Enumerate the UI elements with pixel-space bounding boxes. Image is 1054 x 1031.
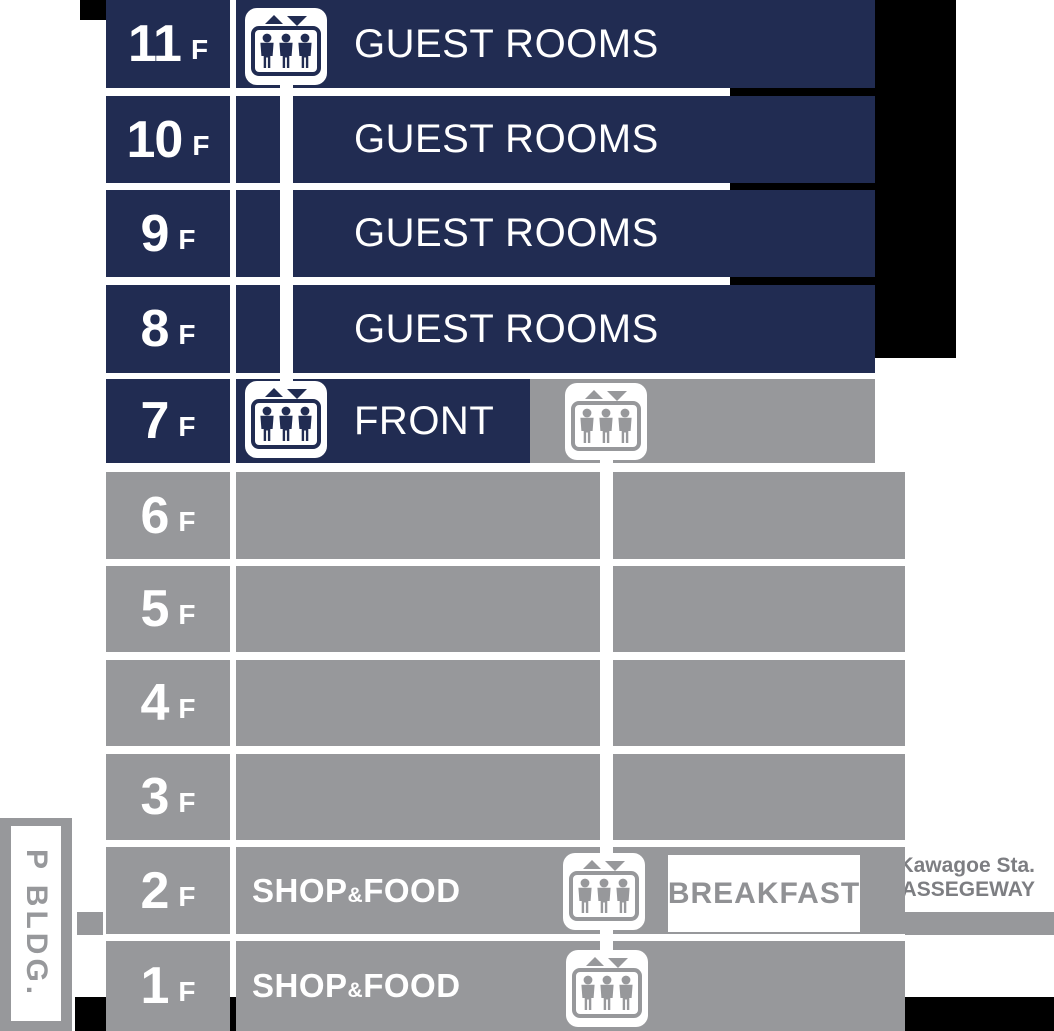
- floor-number: 1: [140, 960, 168, 1012]
- floor-suffix: F: [178, 978, 195, 1006]
- floor-row-2f: 2 F SHOP&FOOD: [0, 847, 1054, 934]
- elevator-shaft-lower: [600, 455, 613, 857]
- elevator-icon: [563, 853, 645, 930]
- floor-content: [236, 472, 905, 559]
- floor-label: GUEST ROOMS: [236, 307, 659, 352]
- floor-suffix: F: [178, 601, 195, 629]
- floor-row-5f: 5 F: [0, 566, 1054, 652]
- floor-content: GUEST ROOMS: [236, 285, 875, 373]
- floor-number-cell: 7 F: [106, 379, 230, 463]
- floor-number: 2: [140, 865, 168, 917]
- floor-content: [236, 660, 905, 746]
- floor-number: 8: [140, 303, 168, 355]
- breakfast-label: BREAKFAST: [668, 877, 860, 911]
- floor-number: 5: [140, 583, 168, 635]
- floor-number-cell: 10 F: [106, 96, 230, 183]
- p-bldg-sign: P BLDG.: [7, 822, 65, 1025]
- floor-number: 11: [128, 18, 181, 70]
- floor-number-cell: 1 F: [106, 941, 230, 1031]
- floor-content: GUEST ROOMS: [236, 190, 875, 277]
- floor-row-7f: 7 F FRONT: [0, 379, 1054, 463]
- floor-label: GUEST ROOMS: [236, 211, 659, 256]
- floor-number-cell: 4 F: [106, 660, 230, 746]
- floor-suffix: F: [178, 321, 195, 349]
- elevator-shaft-upper: [280, 82, 293, 386]
- p-bldg-label: P BLDG.: [19, 849, 53, 998]
- floor-suffix: F: [192, 132, 209, 160]
- floor-number: 9: [140, 208, 168, 260]
- floor-suffix: F: [178, 789, 195, 817]
- floor-number: 6: [140, 490, 168, 542]
- floor-label: SHOP&FOOD: [236, 967, 461, 1005]
- elevator-icon: [245, 8, 327, 85]
- floor-number: 3: [140, 771, 168, 823]
- floor-guide-diagram: P BLDG. Kawagoe Sta. PASSEGEWAY 11 F GUE…: [0, 0, 1054, 1031]
- floor-suffix: F: [191, 36, 208, 64]
- elevator-icon: [245, 381, 327, 458]
- floor-number-cell: 9 F: [106, 190, 230, 277]
- floor-number: 7: [140, 395, 168, 447]
- floor-row-9f: 9 F GUEST ROOMS: [0, 190, 1054, 277]
- floor-row-3f: 3 F: [0, 754, 1054, 840]
- floor-row-11f: 11 F GUEST ROOMS: [0, 0, 1054, 88]
- floor-suffix: F: [178, 413, 195, 441]
- breakfast-box: BREAKFAST: [668, 855, 860, 932]
- floor-row-10f: 10 F GUEST ROOMS: [0, 96, 1054, 183]
- floor-number-cell: 2 F: [106, 847, 230, 934]
- floor-label: SHOP&FOOD: [236, 872, 461, 910]
- elevator-icon: [566, 950, 648, 1027]
- floor-content: [236, 566, 905, 652]
- floor-suffix: F: [178, 226, 195, 254]
- floor-number-cell: 6 F: [106, 472, 230, 559]
- floor-content: [236, 754, 905, 840]
- floor-content: GUEST ROOMS: [236, 96, 875, 183]
- floor-number-cell: 8 F: [106, 285, 230, 373]
- floor-row-6f: 6 F: [0, 472, 1054, 559]
- floor-number: 10: [127, 114, 183, 166]
- floor-number: 4: [140, 677, 168, 729]
- floor-row-1f: 1 F SHOP&FOOD: [0, 941, 1054, 1031]
- floor-number-cell: 5 F: [106, 566, 230, 652]
- floor-number-cell: 11 F: [106, 0, 230, 88]
- floor-number-cell: 3 F: [106, 754, 230, 840]
- elevator-icon: [565, 383, 647, 460]
- floor-suffix: F: [178, 508, 195, 536]
- floor-content: GUEST ROOMS: [236, 0, 875, 88]
- floor-row-4f: 4 F: [0, 660, 1054, 746]
- floor-suffix: F: [178, 695, 195, 723]
- floor-row-8f: 8 F GUEST ROOMS: [0, 285, 1054, 373]
- floor-label: GUEST ROOMS: [236, 117, 659, 162]
- floor-suffix: F: [178, 883, 195, 911]
